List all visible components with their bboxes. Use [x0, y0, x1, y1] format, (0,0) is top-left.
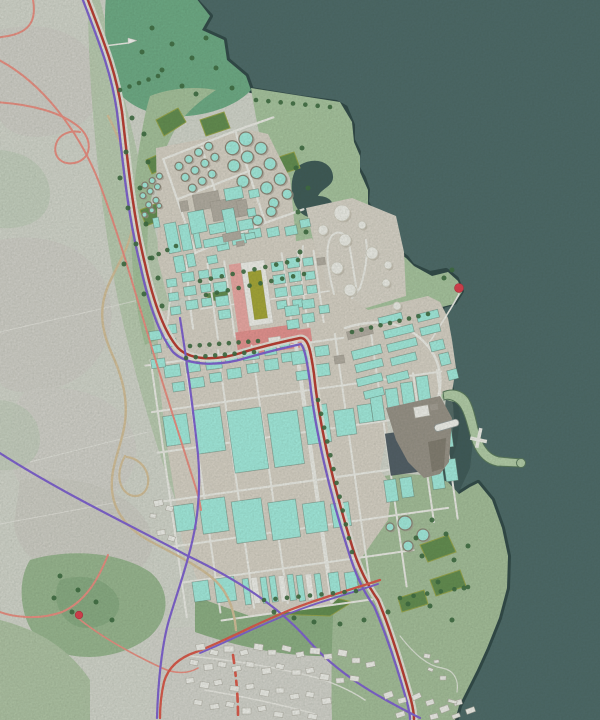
grain-texture [0, 0, 600, 720]
master-plan-map [0, 0, 600, 720]
map-canvas [0, 0, 600, 720]
